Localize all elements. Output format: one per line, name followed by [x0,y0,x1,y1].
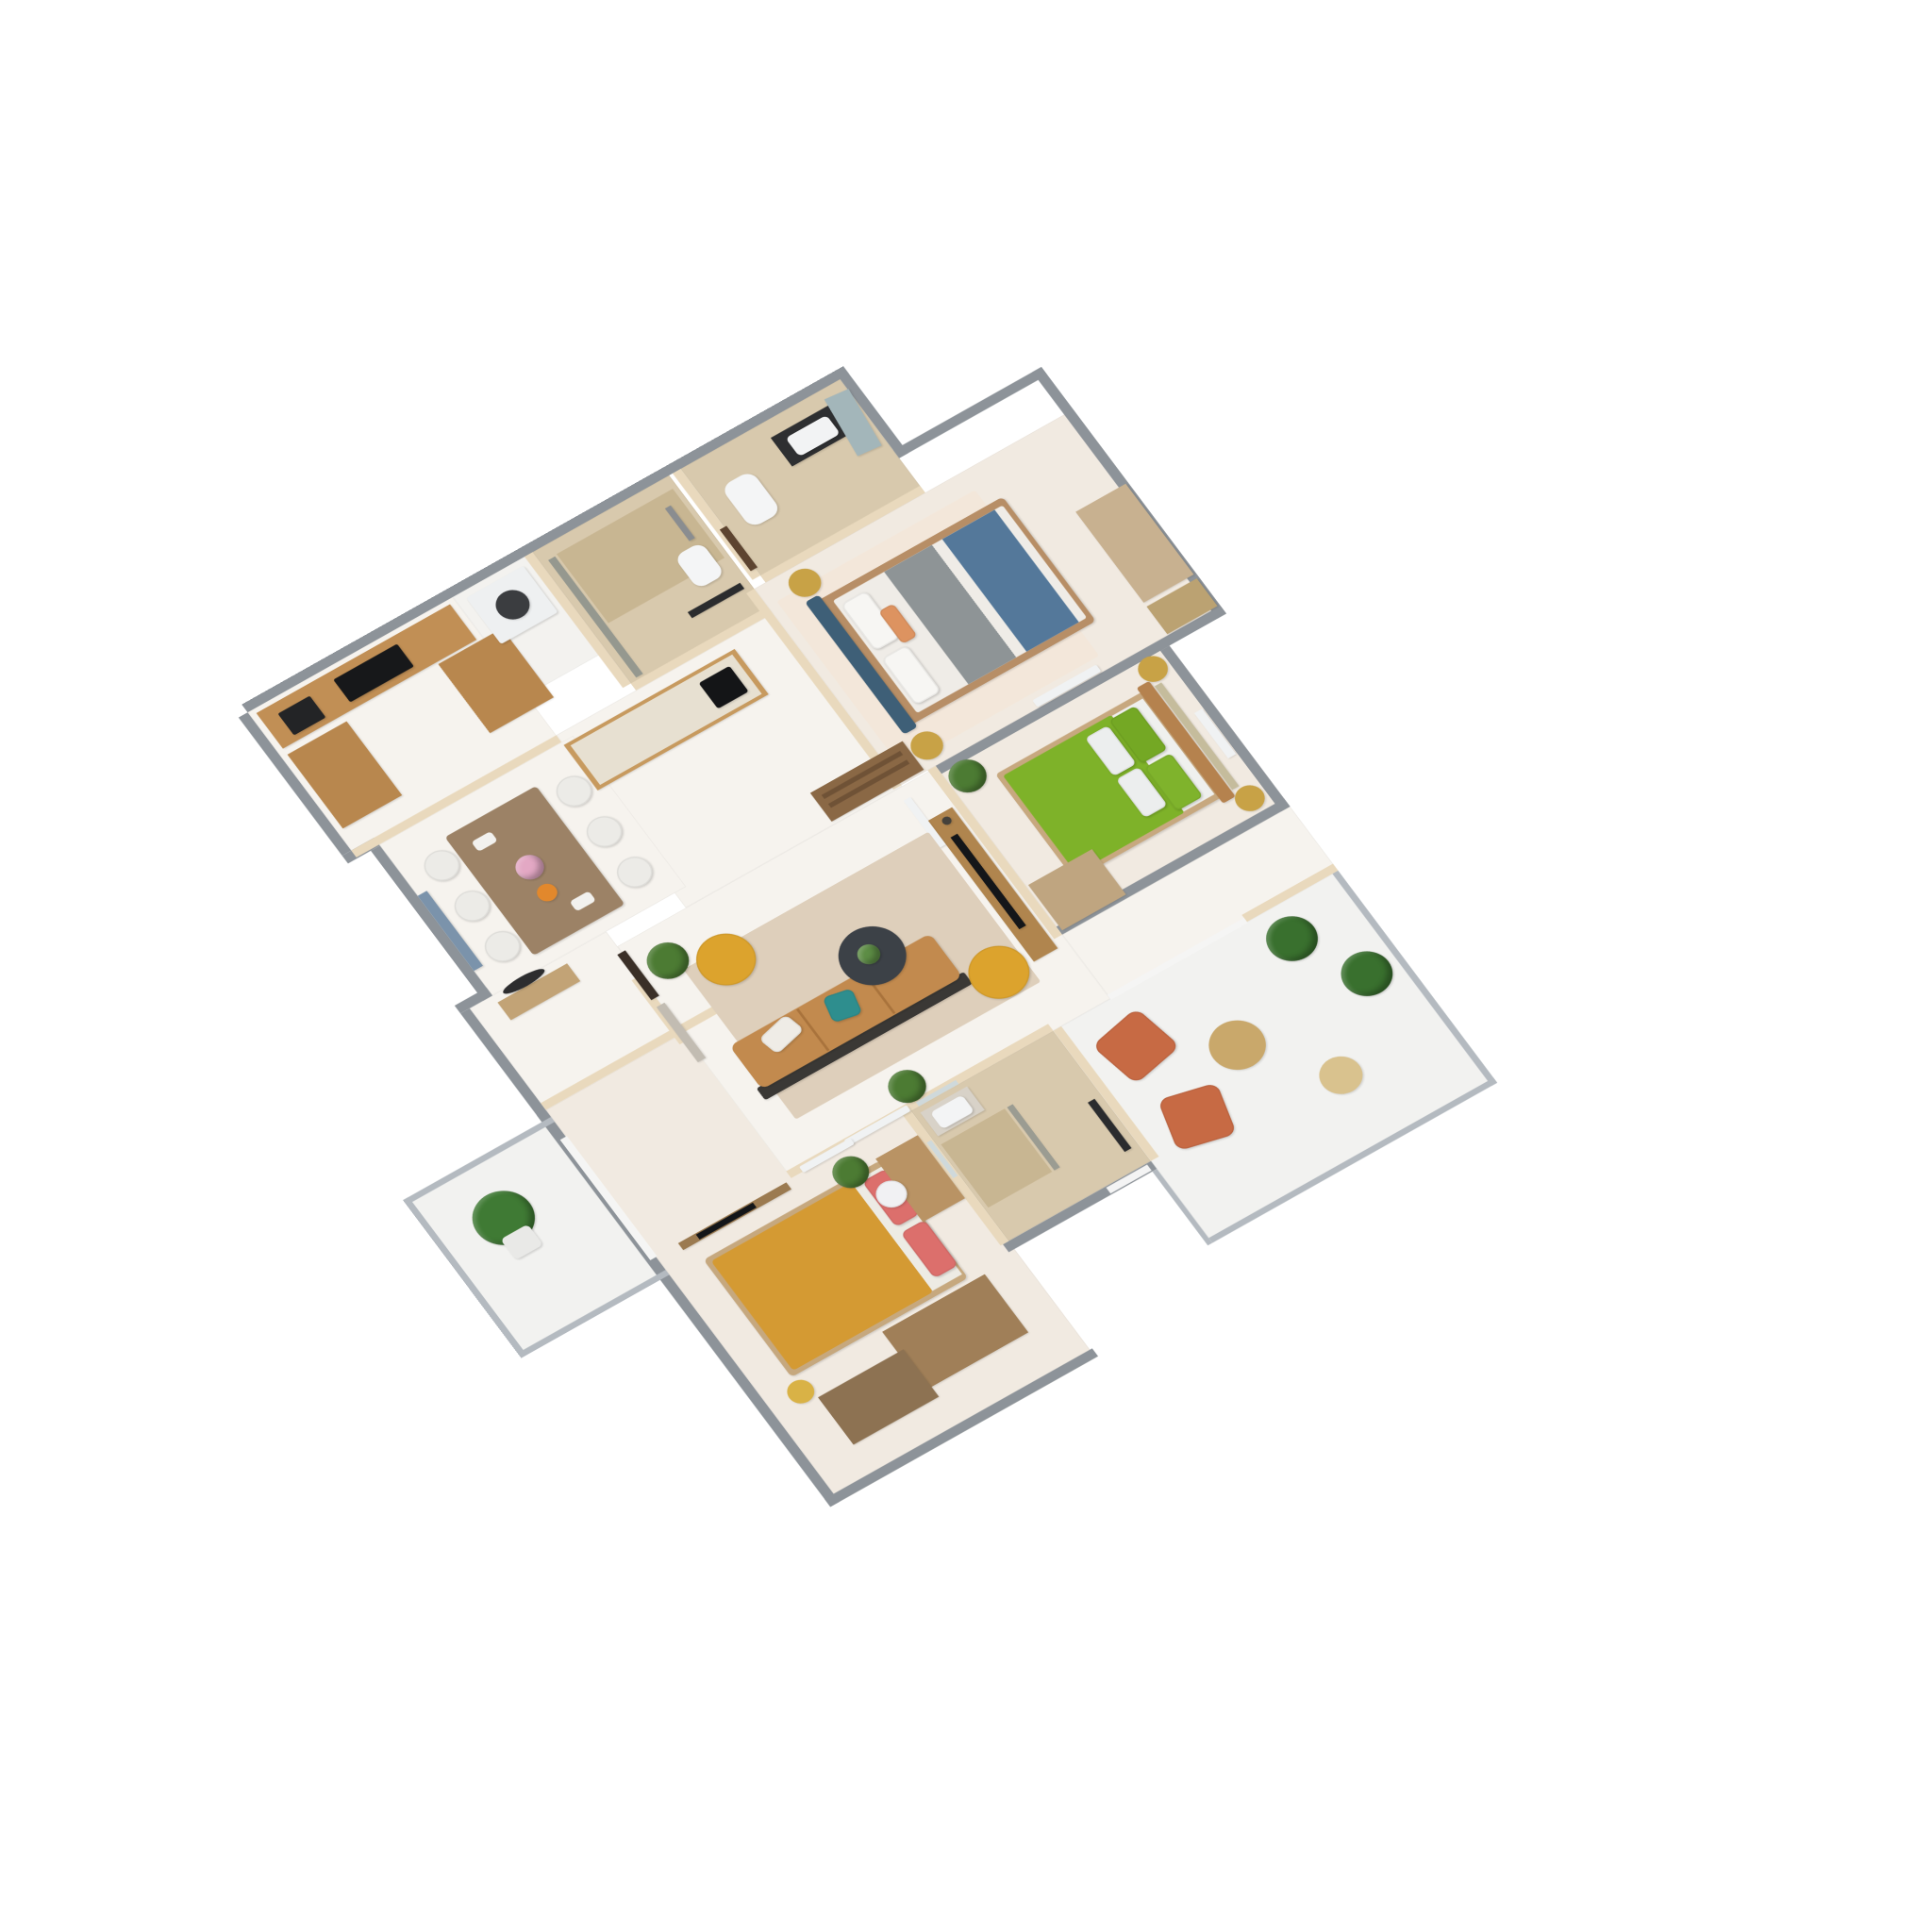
leaning-frames [657,1003,706,1062]
living-ac-unit [843,1105,910,1146]
bedroom2-plant [941,753,994,798]
bed2-nightstand-one [1132,651,1174,687]
terrace-plant-two [1331,942,1403,1005]
bedroom3-pouf [782,1375,820,1408]
terrace-glazed-door [1108,918,1248,1000]
bedroom2-wardrobe [1028,849,1126,930]
terrace-plant-one [1257,908,1328,970]
ensuite-door [720,525,758,571]
ensuite-toilet [720,470,782,528]
terrace-chair-one [1091,1008,1180,1084]
bath2-door [1107,1165,1152,1194]
towel-radiator-two [1088,1099,1131,1152]
furniture-layer [99,296,1598,1610]
dining-chair-six [610,851,659,893]
master-wardrobe-one [1075,484,1193,603]
living-plant-one [639,936,697,986]
towel-radiator-one [688,583,744,619]
terrace-round-mat [1311,1049,1372,1101]
dining-chair-five [580,810,629,853]
floorplan-canvas [0,0,1932,1932]
kitchen-tall-cabinet [288,722,403,829]
terrace-chair-two [1158,1082,1237,1151]
floorplan-isometric-scene [99,296,1598,1610]
balcony-glazed-door [560,1136,658,1260]
terrace-table [1198,1011,1277,1079]
